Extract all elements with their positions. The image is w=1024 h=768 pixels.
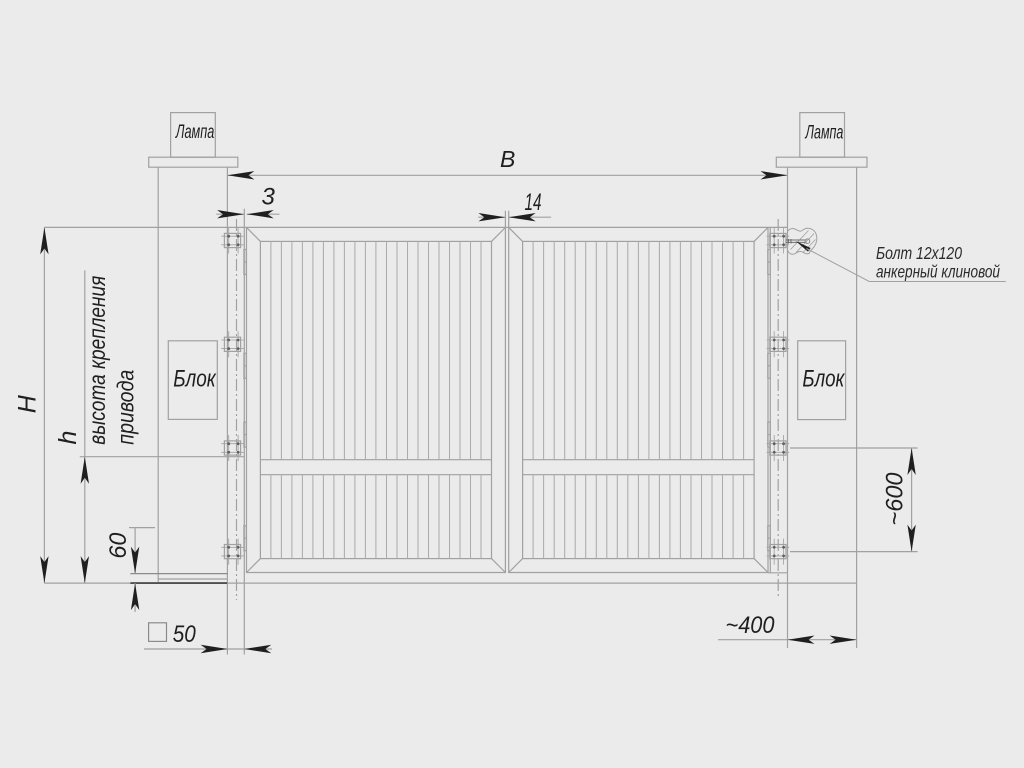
svg-text:~400: ~400 <box>726 612 776 639</box>
svg-text:14: 14 <box>525 189 542 216</box>
svg-text:h: h <box>54 431 82 445</box>
svg-text:высота крепления: высота крепления <box>84 276 110 445</box>
svg-text:Лампа: Лампа <box>804 121 843 143</box>
svg-text:Блок: Блок <box>802 366 845 393</box>
svg-text:Лампа: Лампа <box>174 121 214 143</box>
svg-text:привода: привода <box>113 370 139 445</box>
svg-text:H: H <box>14 394 42 413</box>
svg-text:~600: ~600 <box>882 472 909 526</box>
svg-text:60: 60 <box>105 532 132 559</box>
svg-text:Болт 12х120: Болт 12х120 <box>876 243 962 263</box>
svg-text:3: 3 <box>262 184 276 211</box>
svg-text:Блок: Блок <box>173 366 217 393</box>
svg-text:анкерный клиновой: анкерный клиновой <box>876 262 1000 282</box>
svg-text:B: B <box>500 146 515 172</box>
svg-text:50: 50 <box>173 621 197 648</box>
